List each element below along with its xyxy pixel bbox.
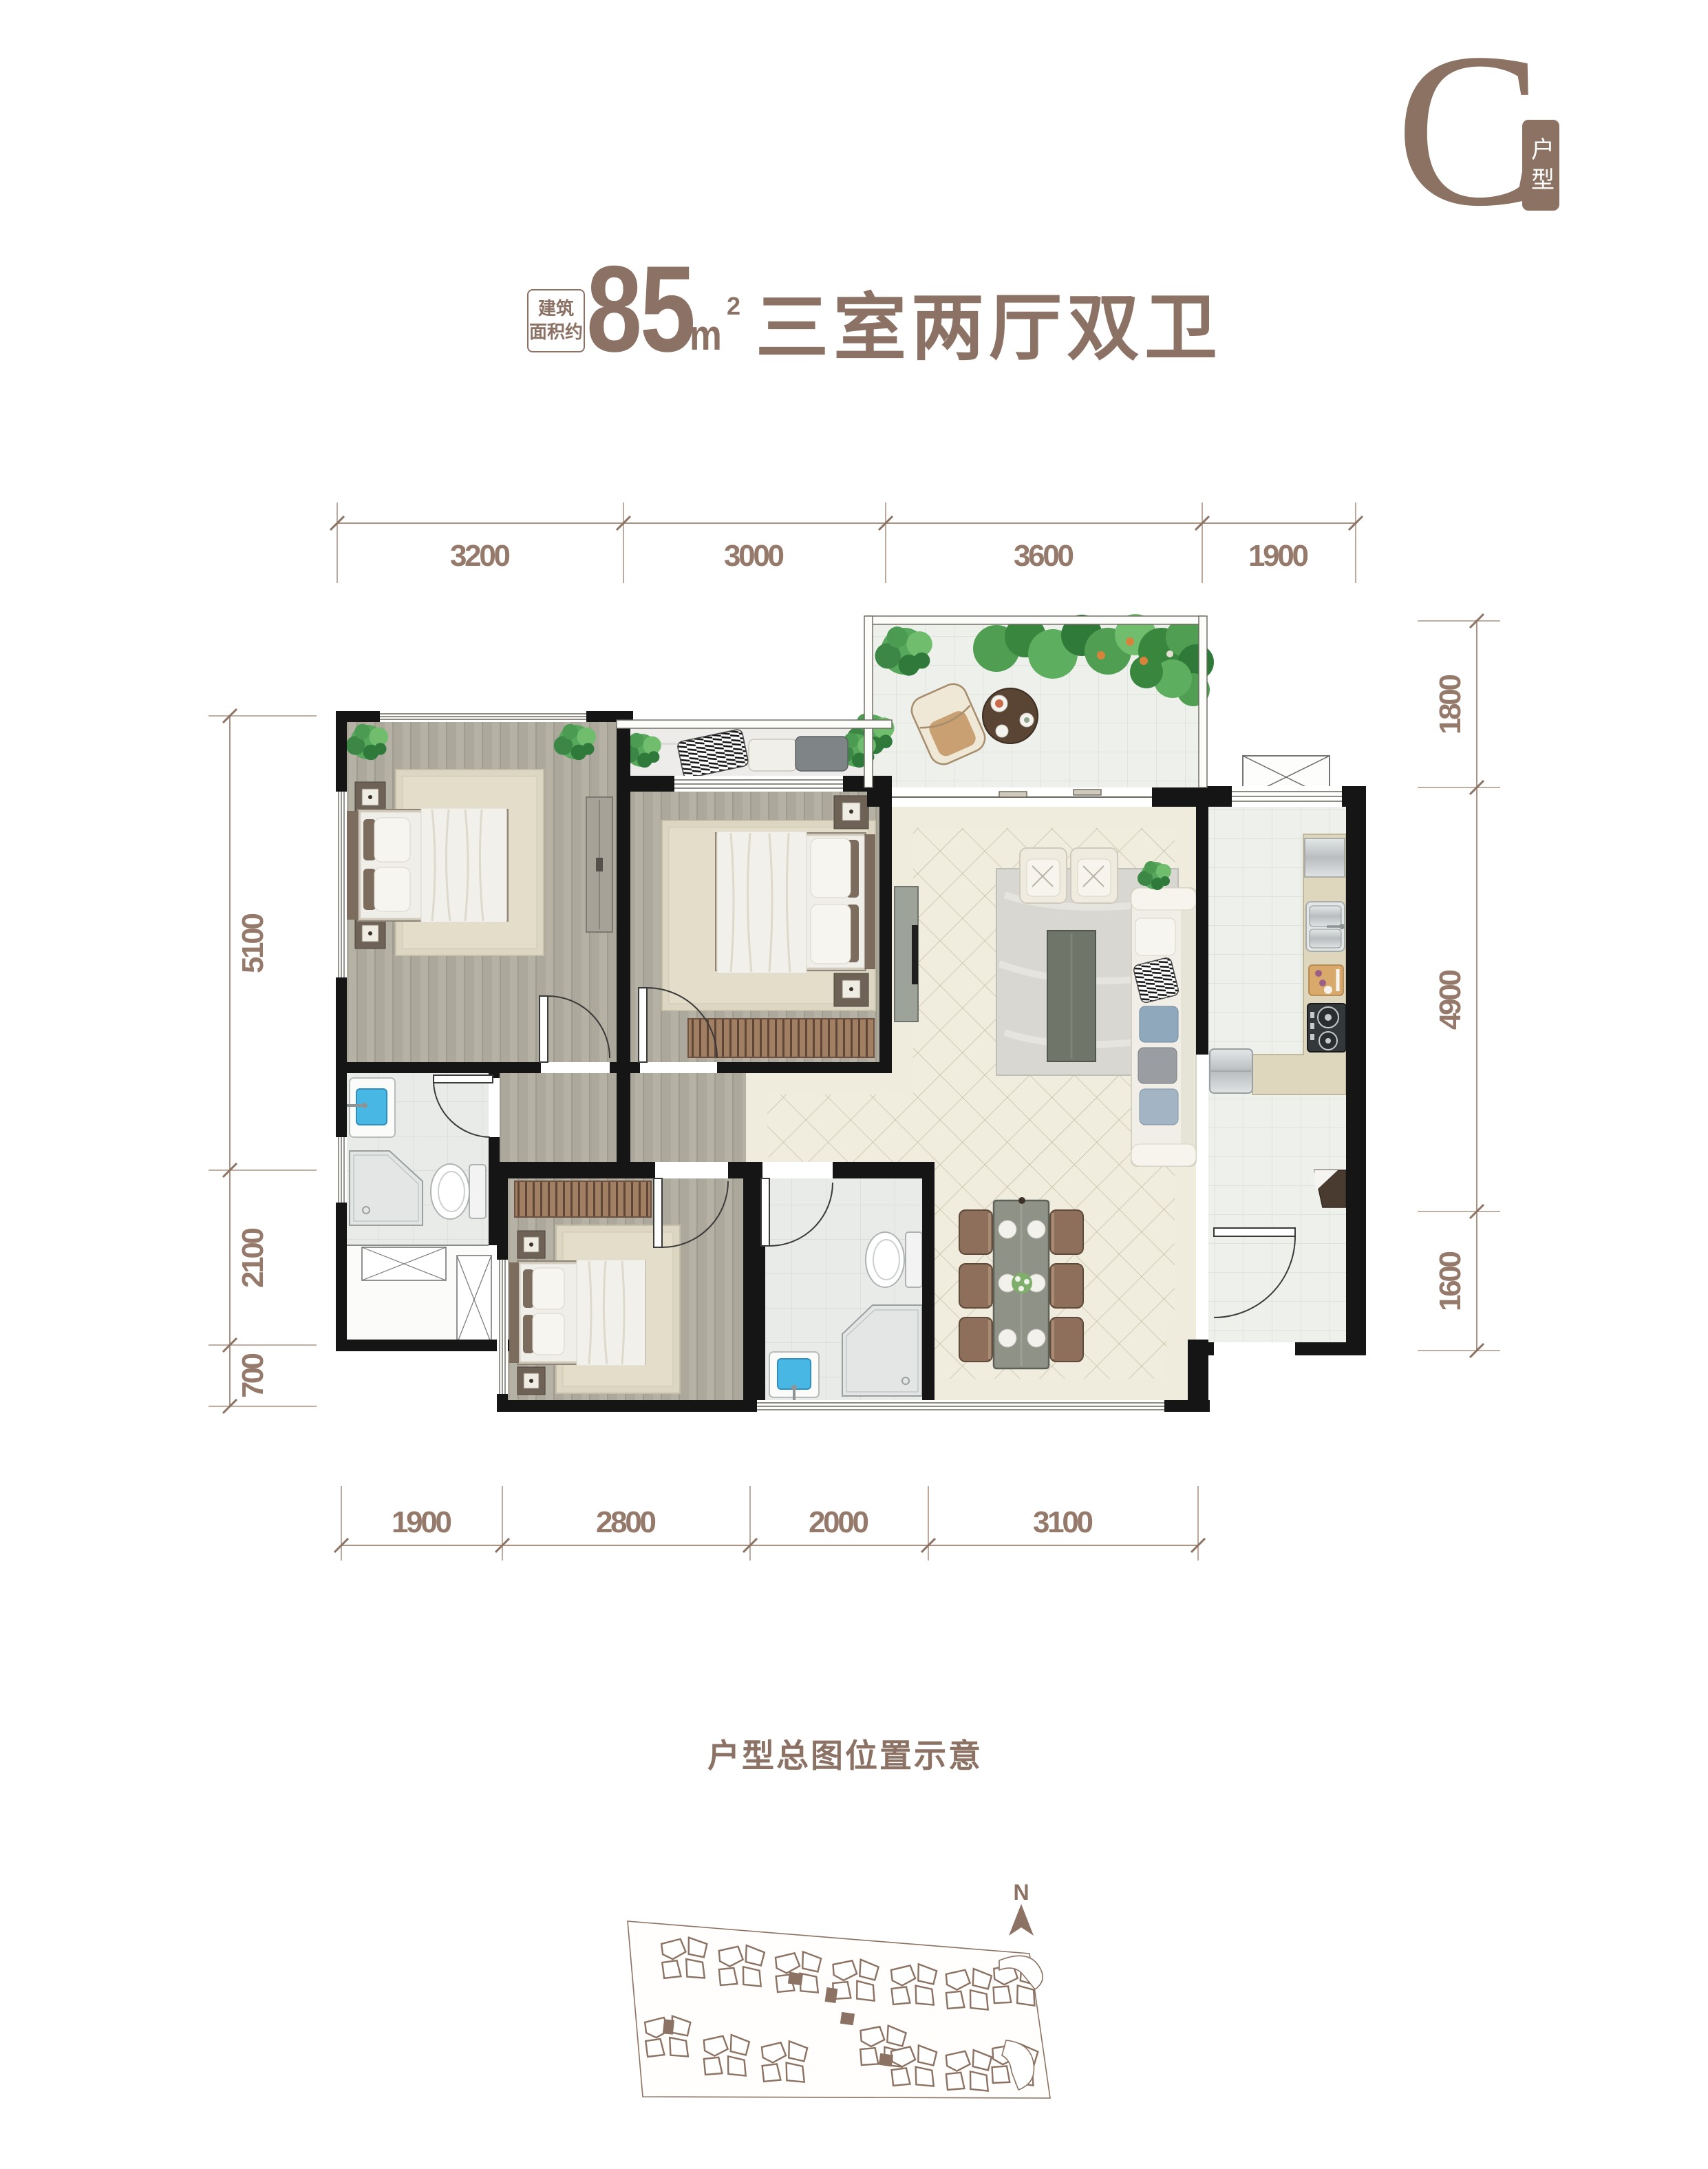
armchair — [1071, 848, 1118, 903]
dim-label: 3600 — [1014, 539, 1074, 573]
double-bed — [347, 808, 508, 922]
dim-label: 3100 — [1033, 1505, 1093, 1539]
dim-label: 4900 — [1433, 969, 1467, 1030]
window — [336, 1137, 347, 1203]
terrace-table — [983, 688, 1038, 743]
dim-label: 3200 — [450, 539, 511, 573]
dim-label: 1900 — [1248, 539, 1309, 573]
vanity-sink — [347, 1078, 395, 1137]
dining-area — [959, 1197, 1083, 1368]
dim-label: 5100 — [236, 913, 270, 973]
kitchen-sink — [1306, 902, 1345, 951]
dim-label: 1600 — [1433, 1251, 1467, 1311]
balcony-railing — [617, 720, 892, 728]
site-plan: N — [628, 1880, 1050, 2098]
nightstand — [834, 796, 868, 829]
dining-table — [994, 1197, 1049, 1368]
bench — [515, 1181, 651, 1217]
dim-label: 3000 — [724, 539, 784, 573]
bed — [509, 1260, 645, 1366]
window — [380, 711, 586, 722]
pillow — [1140, 1089, 1178, 1125]
toilet — [866, 1232, 922, 1287]
pillow — [1138, 1048, 1177, 1083]
dim-label: 1900 — [392, 1505, 452, 1539]
pillow — [1135, 918, 1175, 955]
window — [674, 776, 843, 792]
bench — [688, 1019, 874, 1057]
toilet — [431, 1164, 486, 1219]
pillow — [1140, 1006, 1178, 1042]
gas-stove — [1307, 1004, 1346, 1052]
dim-label: 1800 — [1433, 674, 1467, 734]
nightstand — [517, 1231, 545, 1258]
dim-label: 2800 — [596, 1505, 656, 1539]
north-label: N — [1013, 1880, 1029, 1905]
north-arrow: N — [1009, 1880, 1034, 1936]
window — [1232, 786, 1342, 807]
cutting-board — [1309, 965, 1343, 995]
vanity-sink — [769, 1352, 819, 1401]
window — [497, 1260, 508, 1394]
nightstand — [355, 782, 385, 812]
nightstand — [517, 1367, 545, 1395]
wardrobe — [586, 797, 612, 932]
sofa — [1131, 888, 1196, 1166]
armchair — [1020, 848, 1067, 903]
double-bed — [716, 832, 875, 973]
window — [336, 792, 347, 977]
tv-cabinet — [895, 887, 918, 1022]
floor-plan: 3200 3000 3600 1900 1900 2800 2000 3100 … — [0, 0, 1708, 2169]
bay-window — [757, 1400, 1164, 1412]
nightstand — [355, 918, 385, 949]
dim-label: 700 — [236, 1353, 270, 1398]
drainboard — [1305, 838, 1345, 877]
nightstand — [834, 973, 868, 1006]
refrigerator — [1210, 1049, 1252, 1093]
middle-bedroom — [662, 796, 875, 1057]
dim-label: 2100 — [236, 1227, 270, 1288]
sliding-door — [892, 787, 1152, 807]
dim-label: 2000 — [809, 1505, 869, 1539]
